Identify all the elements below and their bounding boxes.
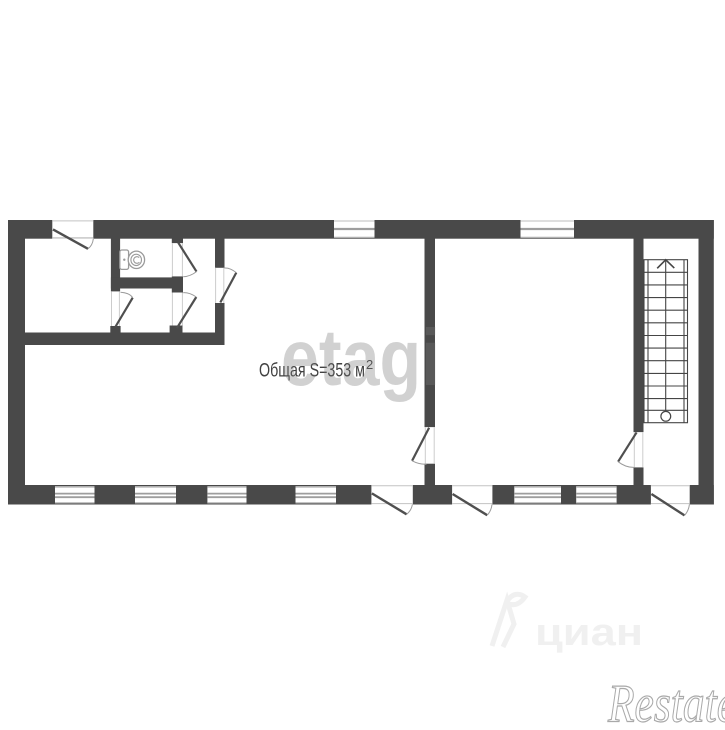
svg-text:циан: циан — [535, 612, 643, 654]
svg-text:Restate: Restate — [607, 674, 725, 726]
svg-text:etagi: etagi — [281, 313, 440, 402]
